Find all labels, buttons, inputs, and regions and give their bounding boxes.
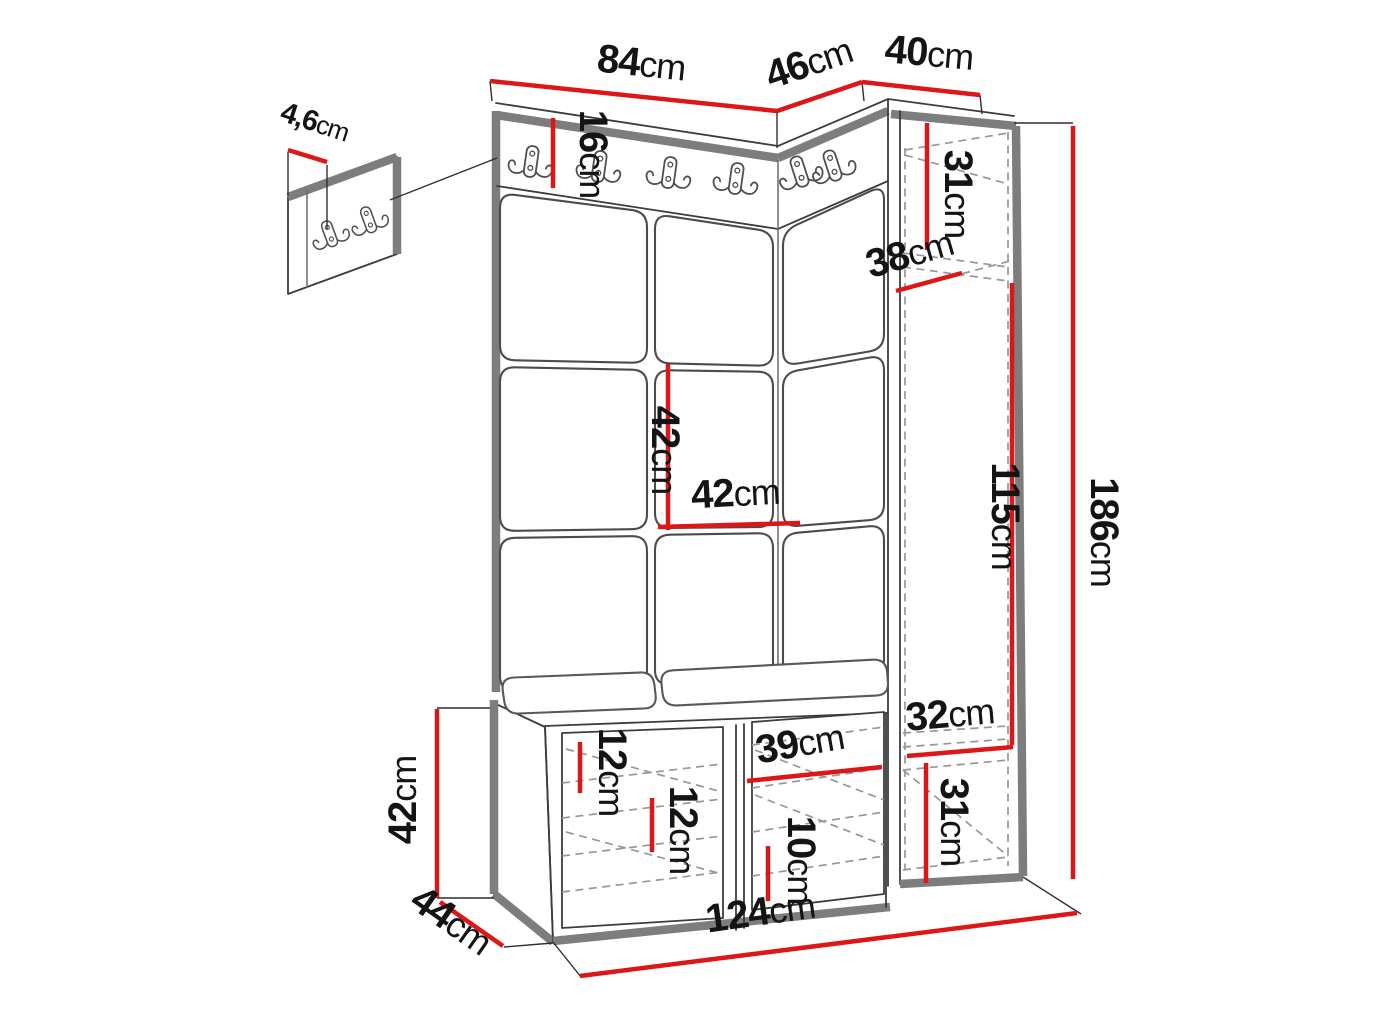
dim-label-cabinet-width: 40cm <box>883 27 975 79</box>
coat-hook-icon <box>807 144 859 187</box>
upholstered-panel <box>783 357 884 526</box>
coat-hook-icon <box>507 143 555 180</box>
dim-line-wall-width <box>490 81 777 111</box>
dim-line-cabinet-width <box>862 82 980 95</box>
dimension-diagram: 84cm 46cm 40cm 4,6cm 16cm 31cm 38cm 42cm… <box>0 0 1381 1036</box>
coat-hooks <box>507 143 858 197</box>
detail-pointer-line <box>390 158 497 200</box>
dim-label-inner-width: 32cm <box>904 688 996 740</box>
dim-line-inner-width <box>907 747 1013 756</box>
dim-label-hook-panel-depth: 4,6cm <box>277 96 353 148</box>
dimension-labels: 84cm 46cm 40cm 4,6cm 16cm 31cm 38cm 42cm… <box>277 27 1126 963</box>
upholstered-panel <box>500 195 647 363</box>
detail-hook-panel <box>288 157 497 294</box>
dim-label-panel-width: 42cm <box>690 469 781 518</box>
dim-line-hook-panel-depth <box>288 150 327 162</box>
dim-label-panel-height: 42cm <box>643 406 687 495</box>
diagram-canvas: 84cm 46cm 40cm 4,6cm 16cm 31cm 38cm 42cm… <box>0 0 1381 1036</box>
dim-label-bench-spacing: 12cm <box>661 786 705 875</box>
coat-hook-icon <box>712 160 760 197</box>
upholstered-panel <box>783 526 884 680</box>
dim-label-bench-depth: 44cm <box>403 877 501 964</box>
dim-label-open-section: 115cm <box>983 462 1027 570</box>
coat-hook-icon <box>645 154 693 191</box>
upholstered-panel <box>655 533 773 684</box>
dim-label-bench-height: 42cm <box>381 756 425 845</box>
dim-label-wall-width: 84cm <box>595 37 688 90</box>
upholstered-panel <box>500 367 647 531</box>
panel-wall <box>496 111 888 692</box>
upholstered-panel <box>655 216 773 366</box>
upholstered-panel <box>500 536 647 690</box>
dim-label-lower-compartment: 31cm <box>932 778 976 867</box>
dim-label-rail-height: 16cm <box>571 110 615 199</box>
seat-cushion <box>503 672 656 713</box>
dim-label-bench-gap-upper: 12cm <box>590 728 634 817</box>
upholstered-panel <box>783 189 884 363</box>
dim-label-total-height: 186cm <box>1082 477 1126 587</box>
